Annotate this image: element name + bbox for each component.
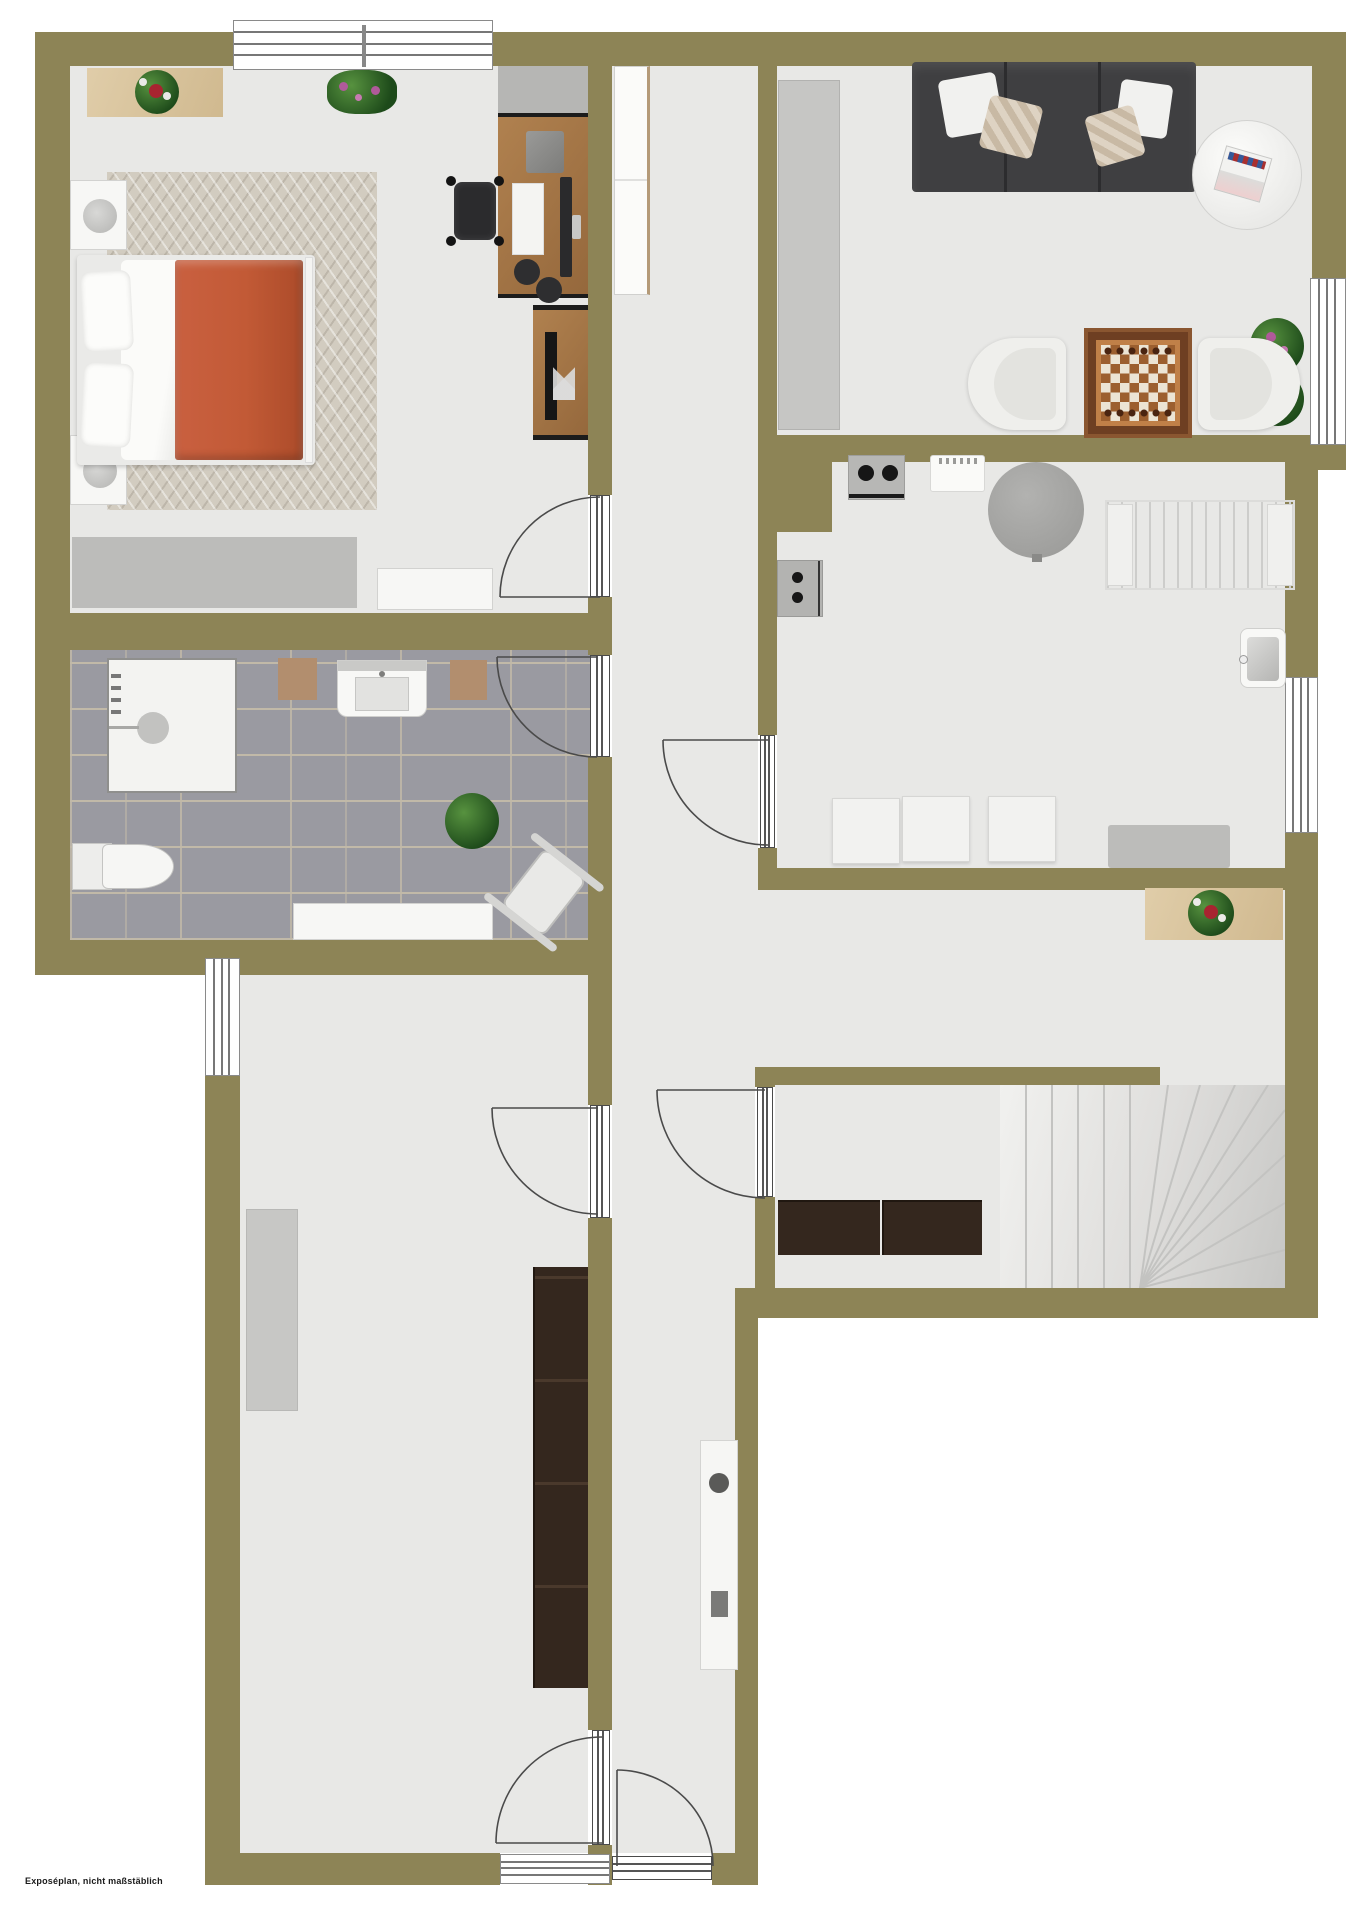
wall-stairs-bottom	[755, 1288, 1318, 1318]
armchair-right	[1198, 338, 1300, 430]
stair-treads	[1000, 1085, 1285, 1288]
wall-outer-left	[35, 32, 70, 975]
kitchen-chair-1	[832, 798, 900, 864]
door-largeroom-lower	[592, 1730, 610, 1845]
wall-kitchen-right-b	[1285, 833, 1318, 1318]
chess-pieces-row	[1102, 406, 1174, 422]
kitchen-bench	[1108, 825, 1230, 868]
hallway-floor-mid	[612, 1067, 755, 1288]
shower-fittings	[111, 668, 121, 714]
headphones	[536, 277, 562, 303]
round-coffee-table	[1192, 120, 1302, 230]
bed-pillow	[80, 362, 134, 449]
bedroom-low-dresser	[72, 537, 357, 608]
wall-kitchen-bottom	[758, 868, 1317, 890]
armchair-left	[968, 338, 1066, 430]
wall-bath-bottom	[35, 940, 612, 975]
window-bottom	[500, 1854, 610, 1884]
keyboard	[512, 183, 544, 255]
toilet	[72, 843, 176, 890]
desk	[498, 117, 588, 298]
bathroom-shelf-bench	[293, 903, 493, 940]
stair-room-cabinet-left	[778, 1200, 880, 1255]
wall-hall-right-lower	[735, 1288, 758, 1853]
wall-stairs-top	[775, 1067, 1160, 1085]
drying-rack	[1105, 500, 1295, 590]
wall-chimney-block	[775, 453, 832, 532]
window-largeroom-left	[205, 958, 240, 1076]
wall-bed-bath-divider	[35, 613, 612, 650]
wall-living-left	[758, 63, 777, 735]
magazine	[1214, 145, 1273, 202]
desk-cabinet	[498, 66, 588, 117]
bouquet-landing-shelf	[1188, 890, 1234, 936]
decor-item	[709, 1473, 729, 1493]
monitor	[560, 177, 572, 277]
bed-pillow	[80, 270, 134, 353]
basin-tap	[379, 671, 385, 677]
chess-table	[1084, 328, 1192, 438]
floor-plan: Exposéplan, nicht maßstäblich	[0, 0, 1357, 1920]
kitchen-sink-unit	[930, 455, 985, 492]
decor-item	[711, 1591, 728, 1617]
sofa-pillow-pattern	[978, 94, 1043, 159]
door-largeroom-upper	[590, 1105, 610, 1218]
office-chair	[446, 172, 502, 252]
door-kitchen	[760, 735, 775, 848]
largeroom-shelf-unit	[533, 1267, 588, 1688]
washing-machine	[777, 560, 823, 617]
stair-room-cabinet-right	[882, 1200, 982, 1255]
door-entrance	[612, 1856, 712, 1880]
kitchen-chair-2	[902, 796, 970, 862]
wall-hall-left-4	[588, 1218, 612, 1730]
shower	[107, 658, 237, 793]
plan-footnote: Exposéplan, nicht maßstäblich	[25, 1876, 163, 1886]
monitor-stand	[572, 215, 581, 239]
hall-console-table	[700, 1440, 738, 1670]
kitchen-chair-3	[988, 796, 1056, 862]
toilet-bowl	[102, 844, 174, 889]
sofa	[912, 62, 1196, 192]
wall-hall-left-2	[588, 597, 612, 655]
wall-bottom-b	[712, 1853, 758, 1885]
wall-largeroom-left-b	[205, 1076, 240, 1885]
wall-outer-right-a	[1312, 32, 1346, 278]
shower-head	[137, 712, 169, 744]
hall-tall-cabinet	[614, 66, 650, 295]
window-kitchen-right	[1285, 677, 1318, 833]
bath-mat-right	[450, 660, 487, 700]
wall-bottom-a	[205, 1853, 500, 1885]
wall-top-main	[493, 32, 1345, 66]
wall-stairroom-left-a	[755, 1067, 775, 1087]
wall-largeroom-left-a	[205, 940, 240, 958]
shower-arm	[109, 726, 139, 729]
bedroom-bench	[377, 568, 493, 610]
bath-mat-left	[278, 658, 317, 700]
window-divider	[362, 25, 366, 67]
door-bedroom	[590, 495, 610, 597]
bedside-lamp	[83, 199, 117, 233]
headphones	[514, 259, 540, 285]
tv-stand	[553, 350, 575, 400]
basin-bowl	[355, 677, 409, 711]
laptop	[526, 131, 564, 173]
bouquet-bedroom-sideboard	[135, 70, 179, 114]
washbasin	[337, 660, 427, 717]
window-bedroom-top	[233, 20, 493, 70]
kitchen-round-table	[988, 462, 1084, 558]
door-stair-room	[757, 1087, 773, 1197]
wall-hall-left-3	[588, 757, 612, 1105]
bed-footboard	[305, 257, 313, 463]
potted-plant-bedroom	[327, 70, 397, 114]
stove	[848, 455, 905, 500]
window-living-right	[1310, 278, 1346, 445]
bed-blanket	[175, 260, 303, 460]
wall-stairroom-left-b	[755, 1197, 775, 1288]
corner-sink	[1240, 628, 1286, 688]
double-bed	[77, 255, 315, 465]
chess-pieces-row	[1102, 344, 1174, 360]
winder-staircase	[1000, 1085, 1285, 1288]
tv-sideboard	[533, 305, 588, 440]
door-bathroom	[590, 655, 610, 757]
living-wardrobe	[778, 80, 840, 430]
largeroom-sideboard	[246, 1209, 298, 1411]
wall-hall-left-1	[588, 66, 612, 495]
potted-plant-bathroom	[445, 793, 499, 849]
nightstand-top	[70, 180, 127, 250]
